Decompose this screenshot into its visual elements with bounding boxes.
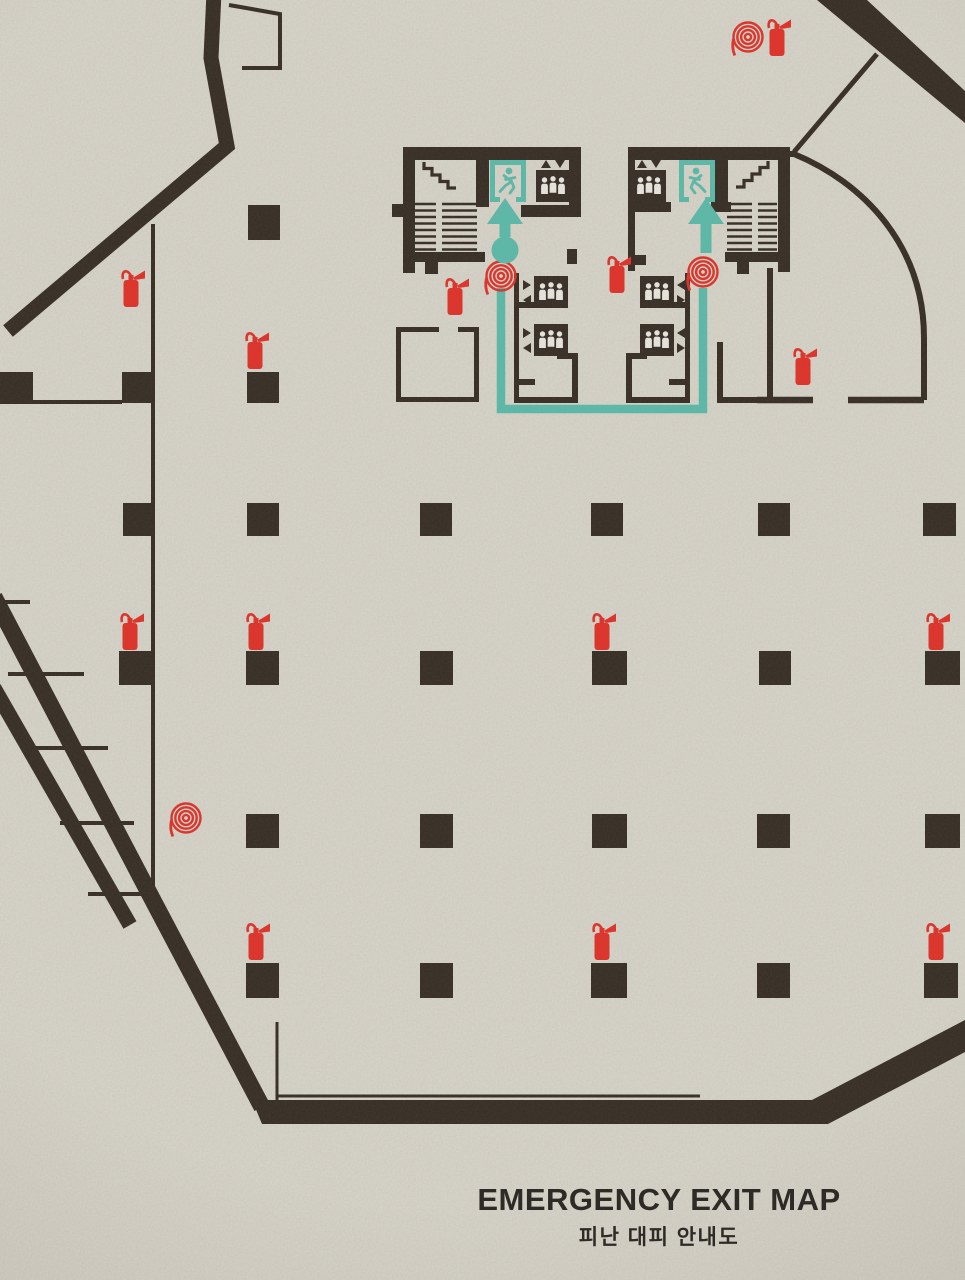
paper-grain-texture: [0, 0, 965, 1280]
map-subtitle-korean: 피난 대피 안내도: [579, 1221, 739, 1251]
map-title: EMERGENCY EXIT MAP: [477, 1182, 840, 1218]
floor-plan: [0, 0, 965, 1280]
emergency-exit-map-sign: EMERGENCY EXIT MAP 피난 대피 안내도: [0, 0, 965, 1280]
